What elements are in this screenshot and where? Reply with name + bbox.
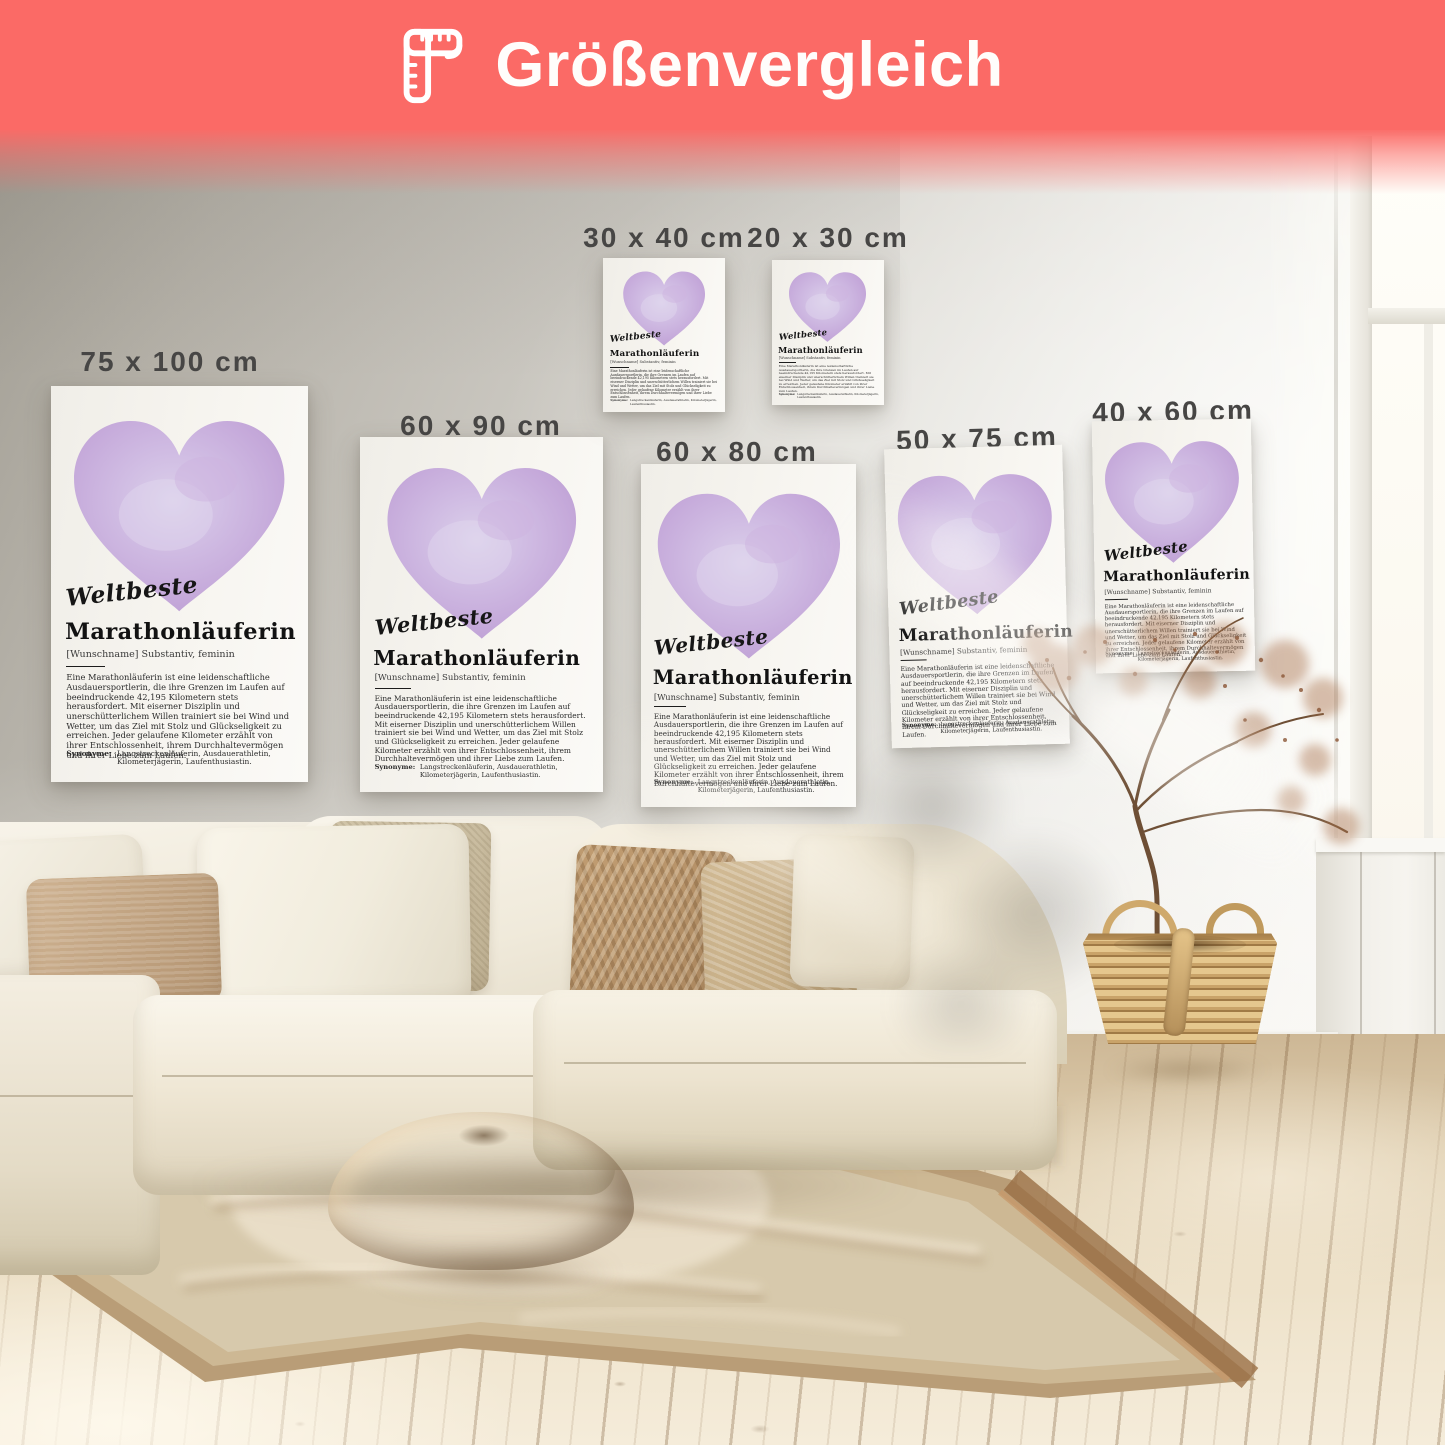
poster-title: Marathonläuferin — [65, 619, 296, 645]
poster-divider — [900, 659, 927, 661]
poster-subtitle: [Wunschname] Substantiv, feminin — [779, 356, 841, 360]
poster-divider — [66, 666, 105, 667]
poster-title: Marathonläuferin — [373, 646, 580, 670]
synonyms-label: Synonyme: — [902, 723, 937, 737]
watercolor-heart — [650, 486, 848, 664]
synonyms-label: Synonyme: — [779, 393, 796, 400]
poster-script-word: Weltbeste — [373, 603, 494, 640]
heart-shape — [789, 273, 866, 343]
poster-synonyms: Synonyme: Langstreckenläuferin, Ausdauer… — [654, 779, 848, 795]
watercolor-heart — [61, 412, 297, 618]
watercolor-heart — [608, 268, 720, 348]
folding-ruler-icon — [397, 22, 469, 108]
poster-synonyms: Synonyme: Langstreckenläuferin, Ausdauer… — [610, 399, 720, 406]
poster-script-word: Weltbeste — [653, 624, 770, 660]
poster-script-word: Weltbeste — [610, 330, 662, 345]
synonyms-label: Synonyme: — [654, 779, 693, 795]
size-label: 60 x 90 cm — [400, 410, 562, 442]
synonyms-label: Synonyme: — [375, 763, 416, 779]
poster-divider — [375, 688, 411, 689]
synonyms-text: Langstreckenläuferin, Ausdauerathletin, … — [698, 779, 848, 795]
size-label: 20 x 30 cm — [747, 222, 909, 254]
size-label: 40 x 60 cm — [1092, 395, 1254, 430]
poster-definition-text: Eine Marathonläuferin ist eine leidensch… — [66, 673, 295, 760]
synonyms-text: Langstreckenläuferin, Ausdauerathletin, … — [117, 750, 298, 768]
poster-mockup: Weltbeste Marathonläuferin [Wunschname] … — [51, 386, 308, 782]
poster-title: Marathonläuferin — [653, 666, 853, 689]
poster-divider — [654, 706, 686, 707]
size-label: 50 x 75 cm — [896, 421, 1058, 457]
poster-synonyms: Synonyme: Langstreckenläuferin, Ausdauer… — [375, 763, 594, 779]
poster-subtitle: [Wunschname] Substantiv, feminin — [66, 649, 234, 660]
poster-synonyms: Synonyme: Langstreckenläuferin, Ausdauer… — [66, 750, 297, 768]
watercolor-heart — [370, 460, 594, 645]
dried-branch-plant — [985, 590, 1380, 955]
banner-content: Größenvergleich — [397, 22, 1003, 108]
poster-title: Marathonläuferin — [610, 349, 700, 359]
synonyms-text: Langstreckenläuferin, Ausdauerathletin, … — [630, 399, 720, 406]
size-comparison-product-image: 75 x 100 cm Weltbeste — [0, 0, 1445, 1445]
poster-definition-text: Eine Marathonläuferin ist eine leidensch… — [654, 713, 845, 788]
poster-divider — [610, 367, 628, 368]
poster-script-word: Weltbeste — [65, 571, 200, 612]
poster-divider — [779, 362, 796, 363]
size-label: 30 x 40 cm — [583, 222, 745, 254]
poster-subtitle: [Wunschname] Substantiv, feminin — [375, 673, 526, 683]
poster-subtitle: [Wunschname] Substantiv, feminin — [610, 360, 675, 364]
size-label: 75 x 100 cm — [80, 346, 259, 378]
poster-script-word: Weltbeste — [778, 328, 827, 343]
poster-mockup: Weltbeste Marathonläuferin [Wunschname] … — [603, 258, 725, 412]
synonyms-label: Synonyme: — [610, 399, 628, 406]
poster-definition-text: Eine Marathonläuferin ist eine leidensch… — [779, 365, 879, 393]
synonyms-label: Synonyme: — [66, 750, 111, 768]
size-label: 60 x 80 cm — [656, 436, 818, 468]
watercolor-heart — [1098, 435, 1247, 569]
heart-shape — [74, 421, 284, 611]
heart-shape — [387, 468, 576, 639]
heart-shape — [1105, 441, 1241, 564]
poster-script-word: Weltbeste — [1103, 538, 1189, 565]
poster-mockup: Weltbeste Marathonläuferin [Wunschname] … — [641, 464, 856, 807]
dried-flower-clusters — [1022, 612, 1359, 844]
poster-definition-text: Eine Marathonläuferin ist eine leidensch… — [375, 695, 591, 764]
synonyms-text: Langstreckenläuferin, Ausdauerathletin, … — [797, 393, 879, 400]
header-banner: Größenvergleich — [0, 0, 1445, 130]
poster-title: Marathonläuferin — [1103, 567, 1250, 586]
poster-mockup: Weltbeste Marathonläuferin [Wunschname] … — [772, 260, 884, 405]
heart-shape — [657, 494, 839, 659]
poster-synonyms: Synonyme: Langstreckenläuferin, Ausdauer… — [779, 393, 880, 400]
page-title: Größenvergleich — [495, 29, 1003, 101]
heart-shape — [623, 271, 705, 345]
synonyms-text: Langstreckenläuferin, Ausdauerathletin, … — [420, 763, 593, 779]
poster-title: Marathonläuferin — [778, 345, 863, 355]
poster-definition-text: Eine Marathonläuferin ist eine leidensch… — [610, 370, 719, 400]
poster-subtitle: [Wunschname] Substantiv, feminin — [654, 692, 800, 702]
banner-fade — [0, 128, 1445, 194]
watercolor-heart — [776, 269, 879, 344]
poster-mockup: Weltbeste Marathonläuferin [Wunschname] … — [360, 437, 603, 792]
